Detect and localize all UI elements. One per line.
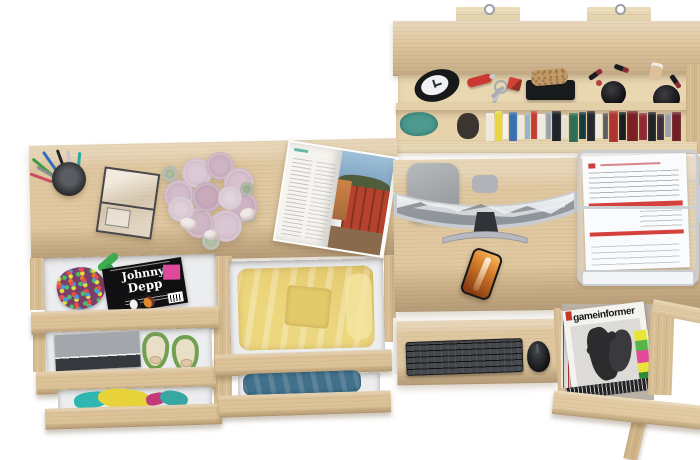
frame-inner-card bbox=[105, 207, 131, 228]
cover-red-tag bbox=[565, 311, 572, 321]
book-spine bbox=[503, 114, 508, 139]
wire-document-tray bbox=[577, 150, 699, 284]
drawer-3-front bbox=[45, 403, 223, 430]
shirt-pocket bbox=[284, 285, 332, 329]
book-spine bbox=[609, 111, 618, 142]
mouse-scroll-line bbox=[536, 344, 539, 353]
tray-lower-tier bbox=[581, 270, 695, 286]
paper-red-logo bbox=[588, 163, 595, 168]
book-spine bbox=[619, 112, 626, 140]
book-spine bbox=[495, 111, 502, 141]
book-spine bbox=[657, 114, 664, 140]
book-spine bbox=[569, 113, 578, 142]
book-spine bbox=[562, 115, 568, 138]
book-spine bbox=[579, 112, 586, 139]
folded-yellow-shirt bbox=[237, 265, 375, 351]
book-spine bbox=[531, 111, 537, 139]
rose-bloom bbox=[162, 166, 178, 182]
book-spine bbox=[552, 111, 561, 141]
book-spine bbox=[596, 114, 602, 138]
left-desk-side-rail bbox=[33, 332, 46, 372]
book-spine bbox=[538, 114, 545, 139]
paper-table-lines bbox=[640, 209, 683, 226]
cover-eye-graphic bbox=[143, 296, 156, 309]
book-spine bbox=[546, 112, 551, 139]
page-header-accent bbox=[294, 148, 308, 153]
shelf-mount-eyelet-icon bbox=[484, 4, 495, 15]
book-spine bbox=[525, 113, 530, 139]
book-spine bbox=[665, 113, 671, 137]
book-spine bbox=[627, 111, 638, 141]
shelf-side-panel bbox=[686, 64, 700, 154]
tray-paper-stack bbox=[582, 153, 690, 271]
book-spine bbox=[639, 113, 647, 140]
rose-bloom bbox=[218, 186, 242, 210]
book-spine bbox=[587, 111, 595, 141]
gray-storage-box bbox=[54, 331, 141, 371]
clock-face bbox=[419, 72, 452, 99]
book-spine bbox=[518, 115, 524, 139]
paper-red-band bbox=[590, 229, 684, 236]
pen-cup bbox=[52, 162, 86, 196]
drawer-5-front bbox=[219, 390, 392, 417]
screen-light-streak bbox=[472, 256, 492, 291]
rack-right-panel bbox=[648, 309, 675, 396]
monitor-stand-base bbox=[443, 232, 527, 244]
open-magazine bbox=[273, 140, 400, 258]
photo-frame bbox=[96, 166, 161, 239]
rose-bloom bbox=[240, 182, 254, 196]
clock-hand bbox=[435, 83, 442, 87]
cover-pink-badge bbox=[163, 265, 180, 280]
pebble bbox=[204, 230, 218, 240]
book-spine bbox=[648, 112, 656, 141]
paper-text-lines bbox=[591, 239, 680, 266]
shirt-sleeve-fold bbox=[345, 273, 373, 340]
dark-pouch bbox=[457, 113, 479, 139]
curved-monitor bbox=[393, 184, 578, 248]
lipstick-bullet bbox=[596, 80, 602, 86]
tray-side-handle bbox=[689, 180, 700, 228]
book-spine bbox=[486, 113, 494, 141]
book-spine bbox=[509, 112, 517, 141]
paper-header-line bbox=[600, 162, 660, 166]
book-spine bbox=[603, 113, 608, 139]
tray-crossbar-wire bbox=[577, 206, 695, 209]
shoe-bow bbox=[149, 356, 161, 365]
shelf-mount-eyelet-icon bbox=[615, 4, 626, 15]
book-row bbox=[486, 111, 692, 145]
paper-text-lines bbox=[589, 169, 680, 198]
book-spine bbox=[672, 112, 681, 141]
furniture-product-render: Johnny Depp bbox=[0, 0, 700, 460]
keyboard bbox=[405, 338, 523, 376]
cover-barcode bbox=[167, 291, 183, 303]
cork-coaster bbox=[530, 67, 568, 86]
